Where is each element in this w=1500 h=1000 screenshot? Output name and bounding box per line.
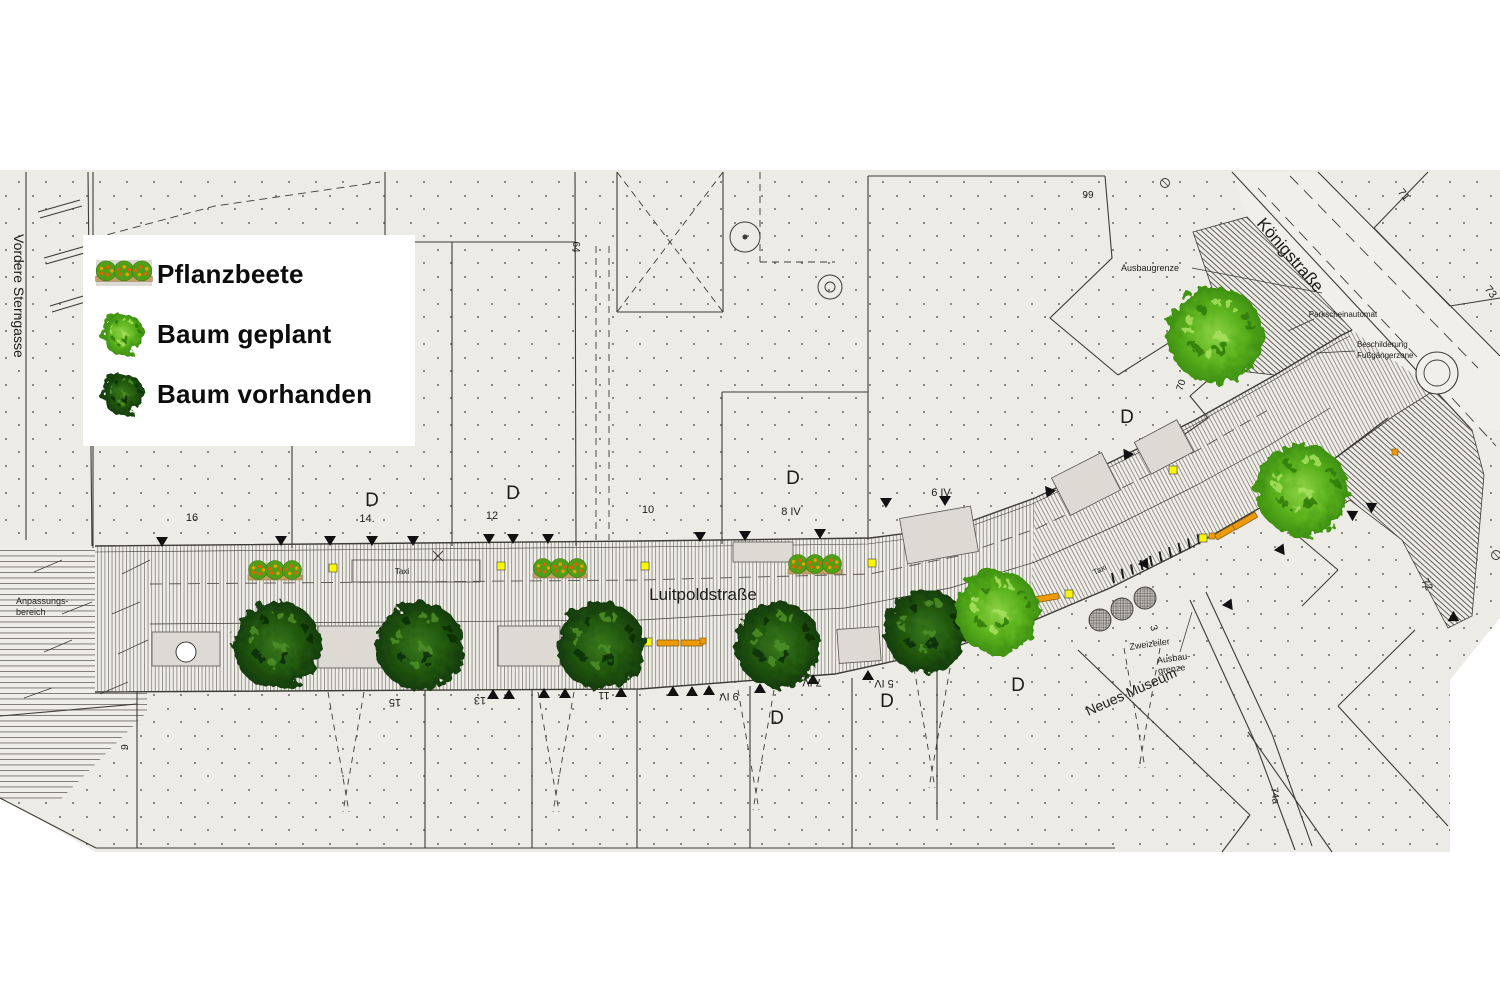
bed-flower [543,570,546,573]
tree-texture [1186,316,1195,325]
tree-texture [996,580,1004,588]
planter-circle [1134,587,1156,609]
bed-flower [295,566,298,569]
bed-flower [138,273,142,277]
tree-texture [280,644,288,652]
tree-texture [423,645,431,653]
bed-flower [553,565,556,568]
bed-flower [100,267,104,271]
bed-flower [819,561,822,564]
bed-flower [580,564,583,567]
tree-texture [123,339,127,343]
bed-flower [808,561,811,564]
legend-item-pflanzbeete: Pflanzbeete [95,252,403,296]
tree-texture [125,393,129,397]
parcel-d-mark: D [506,483,520,504]
kiosk-box [837,627,881,664]
tree-texture [761,617,769,625]
bench [657,640,679,646]
light-marker [1199,534,1207,542]
house-number: 10 [642,504,654,516]
light-marker [641,562,649,570]
bed-flower [814,558,817,561]
bed-flower [144,272,148,276]
house-number: 6 [118,744,129,750]
light-marker [329,564,337,572]
house-number: 74a [1268,787,1281,805]
tree-texture [1332,478,1340,486]
house-number: 64 [570,241,581,253]
tree-texture [260,616,268,624]
house-number: 5 IV [874,677,894,689]
bed-flower [252,566,255,569]
bed-flower [274,564,277,567]
tree-texture [1298,486,1306,494]
tree-texture [573,638,581,646]
tree-texture [981,584,989,592]
tree-texture [1205,350,1214,359]
tree-texture [1197,303,1206,312]
parcel-d-mark: D [880,691,894,712]
bed-flower [561,570,564,573]
tree-texture [576,651,584,659]
parcel-d-mark: D [1120,407,1134,428]
tree-texture [1000,611,1008,619]
house-number: 12 [486,510,498,522]
tree-texture [276,611,284,619]
bed-flower [270,571,273,574]
tree-texture [1306,489,1314,497]
bed-flower [128,268,132,272]
parcel-d-mark: D [1011,675,1025,696]
bed-flower [139,265,143,269]
tree-texture [250,628,258,636]
legend-bed-symbol [96,261,153,281]
tree-texture [1188,340,1197,349]
tree-existing [376,602,464,690]
tree-texture [403,617,411,625]
tree-texture [602,657,610,665]
house-number: 16 [186,512,198,524]
tree-texture [111,396,115,400]
bed-flower [106,273,110,277]
bed-flower [828,566,831,569]
bed-flower [835,560,838,563]
bed-flower [268,567,271,570]
tree-texture [1246,323,1255,332]
bed-flower [825,562,828,565]
tree-texture [411,660,419,668]
planting-bed-icon [95,250,157,298]
tree-texture [998,622,1006,630]
tree-texture [123,399,127,403]
tree-texture [301,623,309,631]
site-plan-page: LuitpoldstraßeVordere SterngasseKönigstr… [0,0,1500,1000]
tree-texture [111,336,115,340]
tree-existing [884,589,968,673]
bed-flower [564,565,567,568]
house-number: 6 IV [931,487,951,499]
legend-item-baum-geplant: Baum geplant [95,312,403,356]
planting-bed [788,555,842,575]
tree-texture [1274,472,1282,480]
bed-flower [123,265,127,269]
bed-flower [285,568,288,571]
small-orange-marker [1209,533,1215,539]
house-number: 11 [598,689,609,701]
planter-circle [1089,609,1111,631]
tree-texture [449,635,457,643]
tree-texture [899,623,907,631]
kiosk-box [733,542,793,562]
tree-texture [110,386,114,390]
tree-texture [134,384,138,388]
annotation-label: bereich [16,607,46,617]
tree-texture [752,628,760,636]
tree-texture [1020,591,1028,599]
tree-texture [989,625,997,633]
parcel-d-mark: D [770,708,784,729]
tree-texture [787,614,795,622]
parcel-d-mark: D [786,468,800,489]
tree-texture [429,614,437,622]
street-name-label: Vordere Sterngasse [11,234,27,358]
tree-texture [1303,501,1311,509]
bed-flower [829,559,832,562]
tree-texture [625,624,633,632]
parcel-d-mark: D [365,490,379,511]
house-number: 66 [1082,188,1094,199]
site-plan-svg: LuitpoldstraßeVordere SterngasseKönigstr… [0,0,1500,1000]
tree-texture [973,616,981,624]
bed-flower [145,267,149,271]
legend-label: Baum geplant [157,319,331,350]
tree-texture [927,641,935,649]
tree-texture [801,624,809,632]
tree-texture [901,615,909,623]
tree-texture [109,390,113,394]
tree-texture [1006,581,1014,589]
tree-texture [910,603,918,611]
tree-texture [1293,504,1301,512]
tree-texture [993,608,1001,616]
house-number: 8 IV [781,506,801,518]
light-marker [497,562,505,570]
bed-flower [579,569,582,572]
tree-texture [119,341,123,345]
tree-texture [777,612,785,620]
bed-flower [570,566,573,569]
tree-texture [1327,468,1335,476]
light-marker [868,559,876,567]
tree-texture [935,600,943,608]
tree-texture [268,659,276,667]
tree-texture [119,401,123,405]
annotation-label: Anpassungs- [16,596,69,606]
small-orange-marker [1392,449,1398,455]
tree-texture [600,612,608,620]
planting-bed [533,559,587,579]
tree-texture [249,637,257,645]
tree-existing [557,602,645,690]
roundabout [1416,352,1458,394]
bed-flower [258,565,261,568]
bed-flower [574,563,577,566]
tree-texture [1216,346,1225,355]
light-marker [644,638,652,646]
bed-flower [258,572,261,575]
tree-texture [392,638,400,646]
tree-texture [1214,298,1223,307]
house-number: 7 IV [802,676,822,688]
tree-texture [902,635,910,643]
bed-flower [547,566,550,569]
legend-item-baum-vorhanden: Baum vorhanden [95,372,403,416]
tree-texture [972,596,980,604]
tree-planned [1167,287,1263,383]
bed-flower [288,572,291,575]
annotation-label: Beschilderung [1357,340,1408,349]
bed-flower [555,569,558,572]
tree-texture [1219,334,1228,343]
tree-planned [1256,444,1348,536]
tree-texture [597,642,605,650]
tree-texture [584,617,592,625]
bed-flower [289,565,292,568]
house-number: 13 [474,694,486,706]
planter-circle [1111,598,1133,620]
tree-texture [109,330,113,334]
bed-flower [537,569,540,572]
annotation-label: Ausbaugrenze [1121,263,1179,273]
planting-bed [248,561,302,581]
tree-texture [781,644,789,652]
tree-texture [273,641,281,649]
tree-texture [421,657,429,665]
tree-texture [1241,312,1250,321]
bed-flower [573,570,576,573]
legend-label: Pflanzbeete [157,259,304,290]
house-number: 15 [389,696,401,708]
bed-flower [125,272,129,276]
bed-flower [100,271,104,275]
tree-texture [252,650,260,658]
tree-texture [127,379,131,383]
tree-texture [110,326,114,330]
tree-texture [137,329,141,333]
tree-texture [121,332,125,336]
tree-texture [929,630,937,638]
annotation-label: Parkscheinautomat [1309,310,1378,319]
bed-flower [110,269,114,273]
tree-texture [1301,455,1309,463]
light-marker [1065,590,1073,598]
legend: Pflanzbeete Baum geplant Baum vorhanden [83,235,415,446]
bed-flower [810,565,813,568]
tree-texture [610,614,618,622]
bed-flower [792,560,795,563]
bed-flower [262,568,265,571]
tree-texture [419,612,427,620]
tree-texture [1211,331,1220,340]
tree-texture [918,644,926,652]
legend-label: Baum vorhanden [157,379,372,410]
tree-texture [1284,460,1292,468]
tree-texture [592,660,600,668]
circle-feature [743,235,748,240]
bed-flower [134,269,138,273]
tree-texture [1276,495,1284,503]
tree-texture [769,659,777,667]
bed-flower [543,563,546,566]
bed-flower [119,272,123,276]
tree-texture [444,624,452,632]
tree-texture [127,319,131,323]
bed-flower [537,564,540,567]
light-marker [1169,466,1177,474]
bed-flower [559,562,562,565]
tree-existing [735,602,821,688]
house-number: 14. [359,513,374,525]
house-number: 9 IV [719,690,739,702]
circle-feature [176,642,196,662]
tree-texture [286,613,294,621]
tree-texture [604,645,612,653]
tree-texture [925,599,933,607]
street-name-label: Luitpoldstraße [649,585,757,604]
tree-texture [806,634,814,642]
small-orange-marker [700,638,706,644]
bed-flower [834,565,837,568]
tree-texture [115,320,119,324]
bed-flower [802,562,805,565]
annotation-label: Taxi [395,567,409,576]
tree-texture [970,604,978,612]
bed-flower [294,571,297,574]
bed-flower [276,572,279,575]
tree-texture [1312,457,1320,465]
tree-texture [779,655,787,663]
tree-texture [278,656,286,664]
tree-texture [125,333,129,337]
tree-texture [1025,601,1033,609]
tree-texture [306,634,314,642]
tree-texture [134,324,138,328]
bed-flower [798,566,801,569]
tree-texture [949,610,957,618]
tree-planned [102,313,144,355]
tree-texture [395,651,403,659]
bed-flower [816,566,819,569]
bed-flower [798,559,801,562]
tree-texture [115,380,119,384]
tree-texture [122,318,126,322]
annotation-label: Fußgängerzone [1357,351,1414,360]
tree-texture [121,392,125,396]
tree-texture [122,378,126,382]
tree-texture [774,641,782,649]
tree-texture [630,635,638,643]
tree-texture [1272,481,1280,489]
tree-existing [102,373,144,415]
tree-existing-icon [95,370,157,418]
bed-flower [792,565,795,568]
kiosk-box [498,626,560,666]
bed-flower [279,567,282,570]
tree-texture [574,629,582,637]
tree-texture [137,389,141,393]
tree-texture [750,637,758,645]
tree-texture [922,627,930,635]
bed-flower [106,265,110,269]
tree-planned [955,570,1039,654]
tree-texture [1225,300,1234,309]
tree-texture [754,650,762,658]
tree-texture [416,642,424,650]
bed-flower [252,571,255,574]
tree-texture [393,629,401,637]
tree-existing [233,601,321,689]
bed-flower [117,268,121,272]
tree-texture [1184,326,1193,335]
tree-planned-icon [95,310,157,358]
